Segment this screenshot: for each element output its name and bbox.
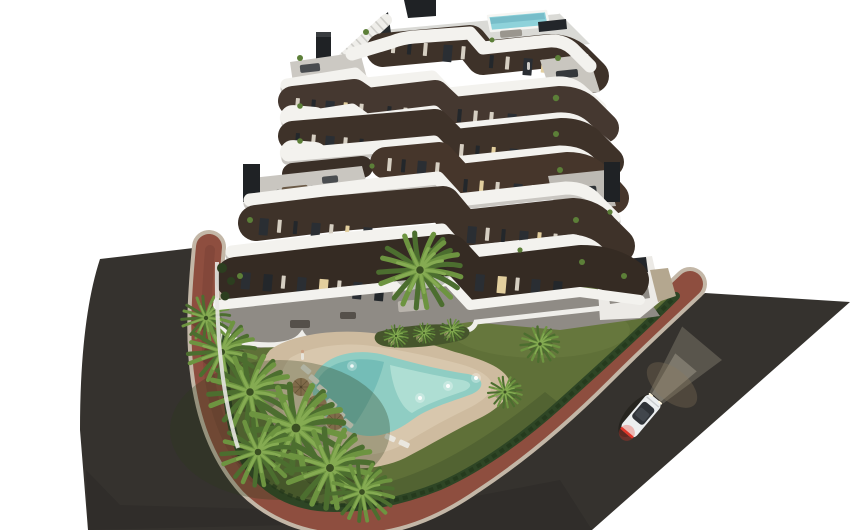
chimney-cap [316, 32, 331, 37]
chimney [604, 162, 620, 202]
person-at-pool [301, 350, 304, 360]
architectural-render-image [0, 0, 850, 530]
render-canvas [0, 0, 850, 530]
patio-sofa [290, 320, 310, 328]
roof-access-box [404, 0, 436, 18]
patio-sofa [340, 312, 356, 319]
person-on-terrace [527, 62, 530, 70]
